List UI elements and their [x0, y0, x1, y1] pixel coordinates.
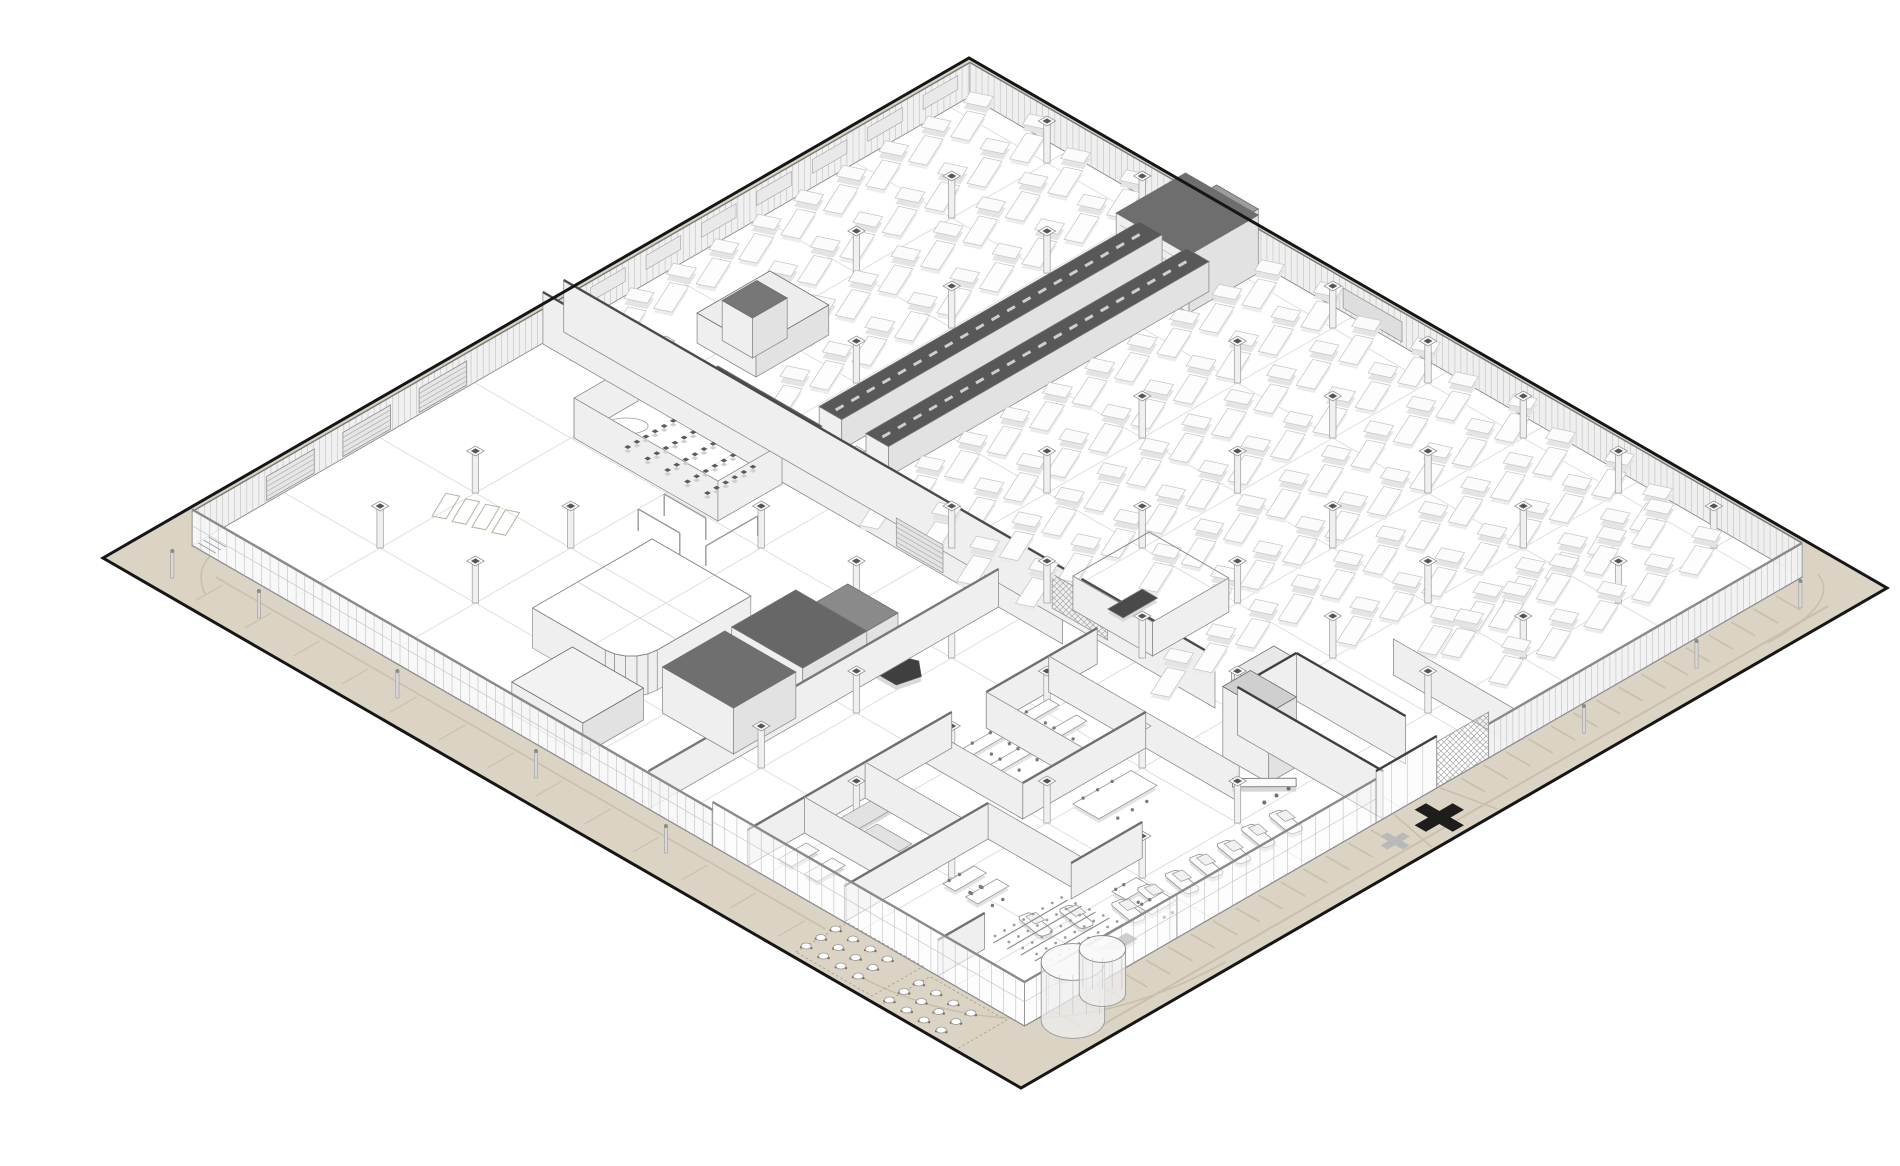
outdoor-pole	[664, 824, 668, 853]
outdoor-pole	[170, 549, 174, 578]
outdoor-pole	[1798, 579, 1802, 608]
axon-svg	[40, 16, 1900, 1150]
axonometric-building-drawing	[40, 16, 1900, 1150]
outdoor-pole	[534, 749, 538, 778]
outdoor-cyl	[1079, 936, 1125, 1007]
outdoor-pole	[1695, 639, 1699, 668]
outdoor-pole	[257, 589, 261, 618]
outdoor-pole	[1582, 704, 1586, 733]
outdoor-pole	[395, 669, 399, 698]
